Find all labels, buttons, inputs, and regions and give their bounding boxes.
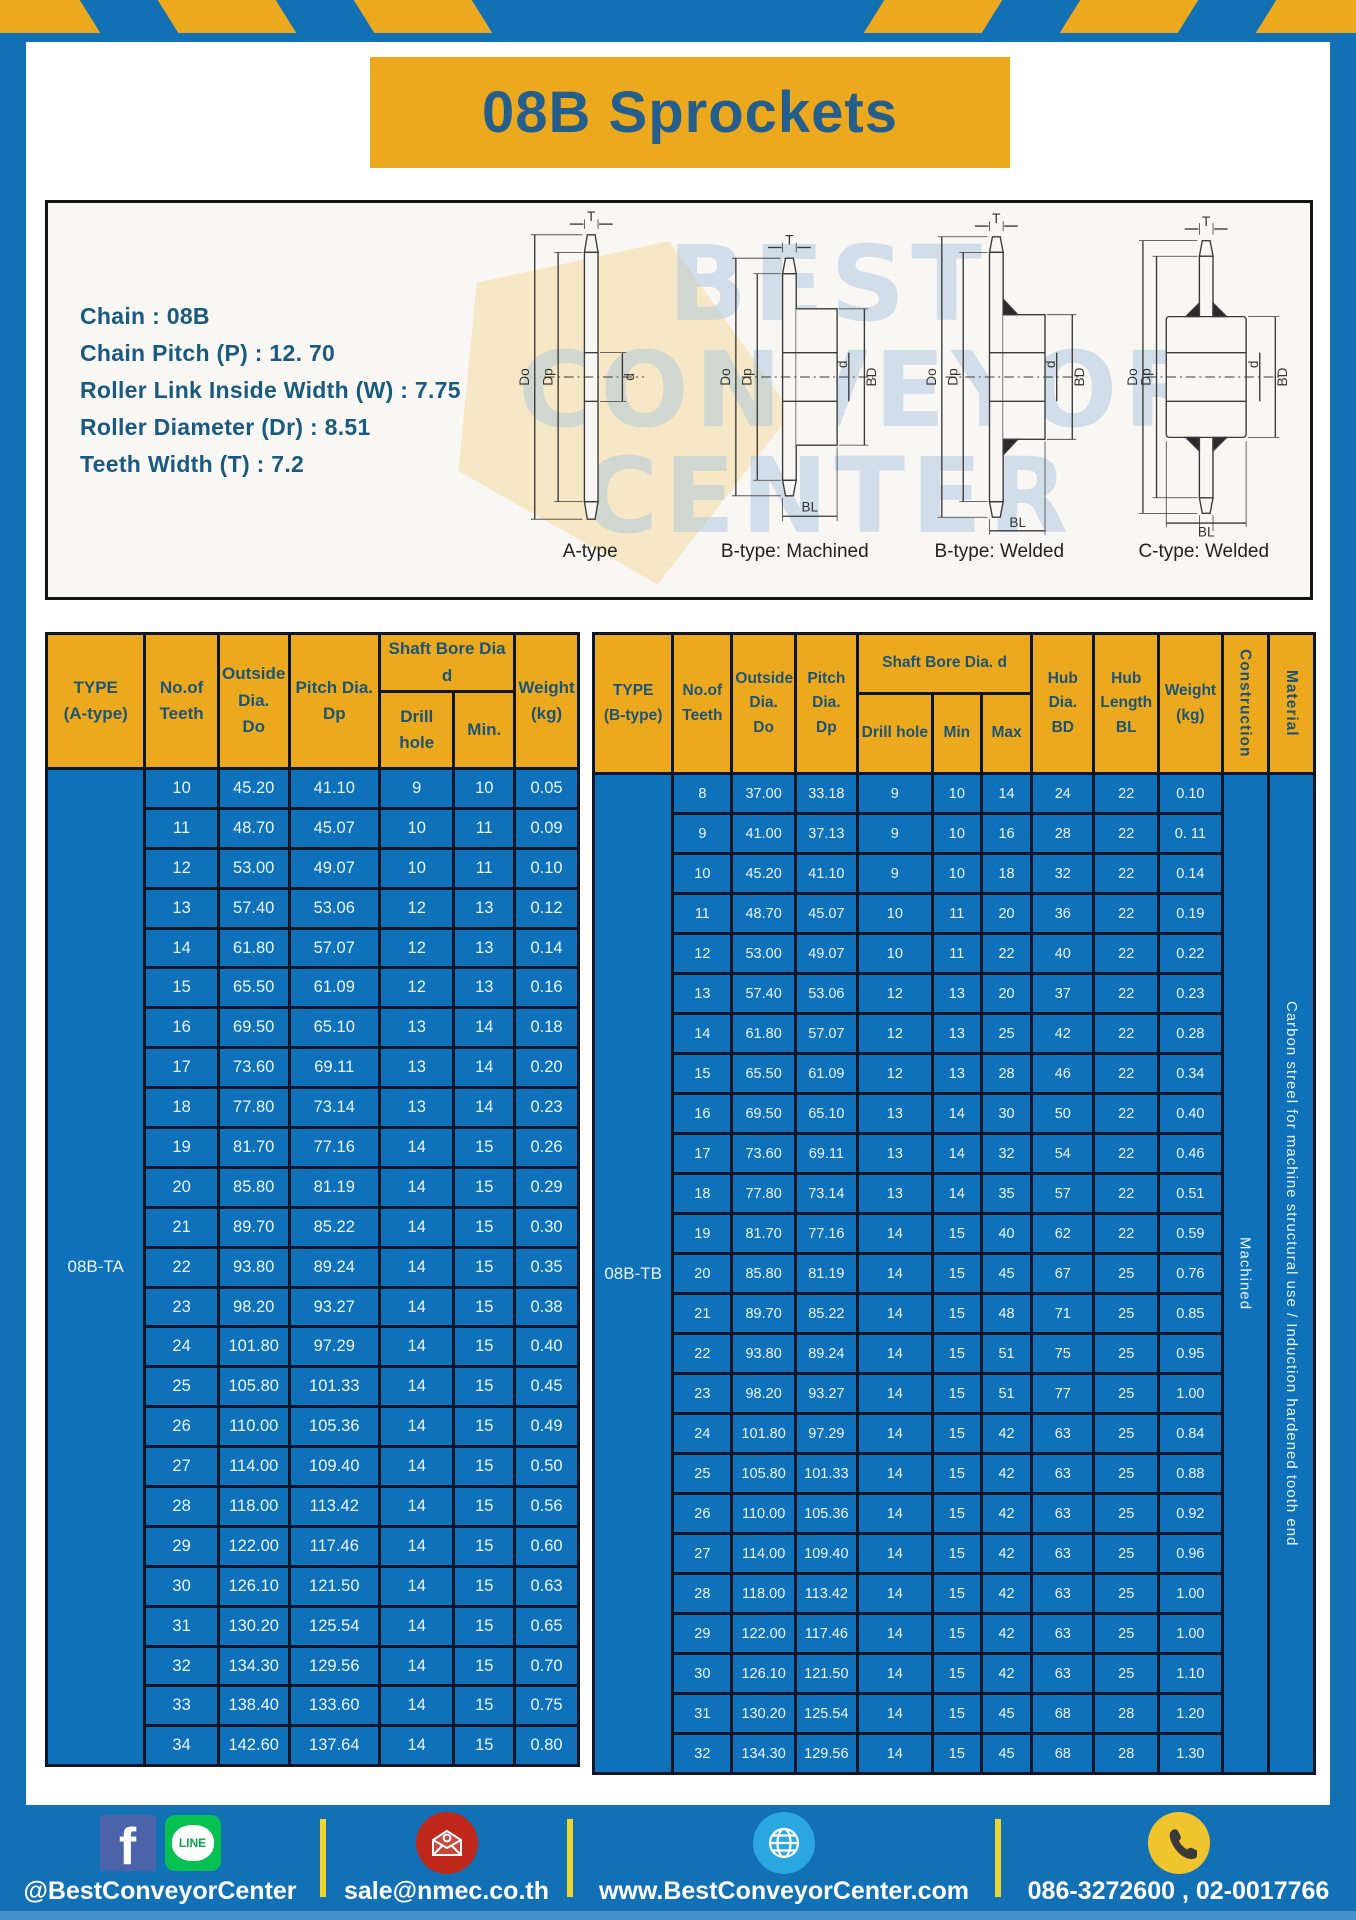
table-b-row: 2293.8089.2414155175250.95	[594, 1334, 1315, 1374]
col-header-min: Min.	[454, 692, 515, 769]
table-a-cell: 57.40	[218, 888, 289, 928]
table-b-body: 08B-TB837.0033.189101424220.10MachinedCa…	[594, 774, 1315, 1774]
table-b-cell: 0.51	[1159, 1174, 1222, 1214]
table-b-cell: 15	[932, 1494, 981, 1534]
table-a-cell: 19	[145, 1128, 218, 1168]
table-a-cell: 122.00	[218, 1526, 289, 1566]
table-b-cell: 129.56	[795, 1734, 857, 1774]
table-b-cell: 114.00	[732, 1534, 795, 1574]
table-a-cell: 0.75	[515, 1686, 579, 1726]
table-a-cell: 101.33	[289, 1367, 379, 1407]
table-b-cell: 13	[857, 1174, 932, 1214]
table-a-cell: 45.20	[218, 769, 289, 809]
table-b-cell: 0.59	[1159, 1214, 1222, 1254]
table-b-cell: 69.11	[795, 1134, 857, 1174]
dim-t: T	[1202, 214, 1211, 229]
table-a-cell: 31	[145, 1606, 218, 1646]
table-a-cell: 142.60	[218, 1726, 289, 1766]
figure-a-type: T Do Dp d A-type	[488, 209, 693, 595]
table-a-cell: 34	[145, 1726, 218, 1766]
table-b-row: 1565.5061.0912132846220.34	[594, 1054, 1315, 1094]
table-b-row: 32134.30129.5614154568281.30	[594, 1734, 1315, 1774]
table-b-cell: 22	[1094, 1214, 1159, 1254]
table-b-cell: 81.70	[732, 1214, 795, 1254]
footer-phone-segment[interactable]: 086-3272600 , 02-0017766	[1001, 1805, 1356, 1920]
table-b-cell: 21	[673, 1294, 732, 1334]
top-decorative-band	[0, 0, 1356, 42]
table-a-cell: 73.60	[218, 1048, 289, 1088]
phone-icon[interactable]	[1148, 1812, 1210, 1874]
table-b-cell: 36	[1032, 894, 1094, 934]
col-header-pitch-dia: Pitch Dia. Dp	[795, 634, 857, 774]
table-a-cell: 61.80	[218, 928, 289, 968]
table-b-cell: 42	[981, 1654, 1031, 1694]
table-b-cell: 105.80	[732, 1454, 795, 1494]
table-b-row: 31130.20125.5414154568281.20	[594, 1694, 1315, 1734]
table-a-cell: 0.12	[515, 888, 579, 928]
table-b-cell: 42	[1032, 1014, 1094, 1054]
table-a-cell: 97.29	[289, 1327, 379, 1367]
table-b-cell: 121.50	[795, 1654, 857, 1694]
table-b-row: 26110.00105.3614154263250.92	[594, 1494, 1315, 1534]
table-b-row: 1357.4053.0612132037220.23	[594, 974, 1315, 1014]
table-b-cell: 42	[981, 1454, 1031, 1494]
table-b-cell: 113.42	[795, 1574, 857, 1614]
table-b-cell: 0.28	[1159, 1014, 1222, 1054]
table-a-cell: 26	[145, 1407, 218, 1447]
table-b-cell: 24	[673, 1414, 732, 1454]
table-a-cell: 15	[454, 1606, 515, 1646]
table-a-cell: 14	[380, 1167, 454, 1207]
table-a-cell: 93.80	[218, 1247, 289, 1287]
table-b-cell: 68	[1032, 1734, 1094, 1774]
table-b-cell: 14	[932, 1094, 981, 1134]
table-b-cell: 0.19	[1159, 894, 1222, 934]
col-header-max: Max	[981, 694, 1031, 774]
table-a-cell: 0.45	[515, 1367, 579, 1407]
dim-d: d	[622, 373, 637, 381]
social-handle[interactable]: @BestConveyorCenter	[23, 1877, 296, 1906]
table-a-cell: 10	[145, 769, 218, 809]
col-header-material: Material	[1268, 634, 1314, 774]
table-b-cell: 30	[673, 1654, 732, 1694]
table-b-cell: 118.00	[732, 1574, 795, 1614]
table-a-cell: 110.00	[218, 1407, 289, 1447]
table-b-cell: 10	[857, 934, 932, 974]
table-a-cell: 118.00	[218, 1487, 289, 1527]
table-b-cell: 10	[932, 854, 981, 894]
table-b-cell: 14	[857, 1654, 932, 1694]
table-a-cell: 114.00	[218, 1447, 289, 1487]
dim-dp: Dp	[945, 368, 960, 385]
table-a-cell: 15	[454, 1407, 515, 1447]
table-a-cell: 9	[380, 769, 454, 809]
table-a-cell: 0.49	[515, 1407, 579, 1447]
table-b-cell: 45	[981, 1734, 1031, 1774]
col-header-weight: Weight (kg)	[1159, 634, 1222, 774]
col-header-hub-dia: Hub Dia. BD	[1032, 634, 1094, 774]
facebook-icon[interactable]: f	[100, 1815, 156, 1871]
table-b-cell: 11	[932, 934, 981, 974]
table-b-cell: 12	[857, 974, 932, 1014]
table-b-cell: 53.00	[732, 934, 795, 974]
table-a-cell: 113.42	[289, 1487, 379, 1527]
table-b-row: 2189.7085.2214154871250.85	[594, 1294, 1315, 1334]
table-b-cell: 26	[673, 1494, 732, 1534]
table-b-cell: 15	[932, 1574, 981, 1614]
table-b-row: 24101.8097.2914154263250.84	[594, 1414, 1315, 1454]
figure-label: B-type: Machined	[721, 541, 869, 563]
table-a-cell: 14	[380, 1526, 454, 1566]
table-b-cell: 1.00	[1159, 1374, 1222, 1414]
table-b-cell: 69.50	[732, 1094, 795, 1134]
table-b-cell: 25	[1094, 1294, 1159, 1334]
sprocket-table-a-type: TYPE (A-type) No.of Teeth Outside Dia. D…	[45, 632, 580, 1767]
table-a-cell: 0.29	[515, 1167, 579, 1207]
table-a-cell: 0.14	[515, 928, 579, 968]
table-a-body: 08B-TA1045.2041.109100.051148.7045.07101…	[47, 769, 579, 1766]
table-a-cell: 12	[145, 848, 218, 888]
b-type-machined-drawing: T Do Dp d BD BL	[693, 209, 898, 545]
footer-email-segment[interactable]: sale@nmec.co.th	[326, 1805, 567, 1920]
table-a-cell: 14	[380, 1606, 454, 1646]
table-b-row: 25105.80101.3314154263250.88	[594, 1454, 1315, 1494]
table-b-cell: 54	[1032, 1134, 1094, 1174]
table-a-cell: 0.65	[515, 1606, 579, 1646]
line-bubble: LINE	[172, 1825, 214, 1861]
construction-cell: Machined	[1222, 774, 1268, 1774]
title-banner: 08B Sprockets	[370, 57, 1010, 168]
table-a-cell: 65.10	[289, 1008, 379, 1048]
table-b-cell: 101.80	[732, 1414, 795, 1454]
table-b-cell: 31	[673, 1694, 732, 1734]
col-header-hub-length: Hub Length BL	[1094, 634, 1159, 774]
table-a-cell: 10	[454, 769, 515, 809]
table-b-cell: 85.22	[795, 1294, 857, 1334]
table-b-cell: 1.20	[1159, 1694, 1222, 1734]
table-a-cell: 11	[454, 848, 515, 888]
phone-numbers[interactable]: 086-3272600 , 02-0017766	[1028, 1877, 1330, 1906]
table-a-cell: 14	[380, 1247, 454, 1287]
table-a-cell: 93.27	[289, 1287, 379, 1327]
footer-social-segment[interactable]: f LINE @BestConveyorCenter	[0, 1805, 320, 1920]
table-b-type-cell: 08B-TB	[594, 774, 673, 1774]
table-a-cell: 133.60	[289, 1686, 379, 1726]
contact-footer: f LINE @BestConveyorCenter sale@nmec.co.…	[0, 1805, 1356, 1920]
table-a-cell: 117.46	[289, 1526, 379, 1566]
table-b-cell: 130.20	[732, 1694, 795, 1734]
table-b-cell: 9	[857, 774, 932, 814]
website-url[interactable]: www.BestConveyorCenter.com	[599, 1877, 969, 1906]
table-b-cell: 110.00	[732, 1494, 795, 1534]
table-b-cell: 61.09	[795, 1054, 857, 1094]
table-a-cell: 14	[380, 1128, 454, 1168]
table-a-cell: 109.40	[289, 1447, 379, 1487]
table-b-cell: 89.70	[732, 1294, 795, 1334]
table-b-cell: 15	[932, 1294, 981, 1334]
col-header-drill-hole: Drill hole	[380, 692, 454, 769]
table-b-cell: 1.10	[1159, 1654, 1222, 1694]
table-b-cell: 37	[1032, 974, 1094, 1014]
table-b-cell: 25	[1094, 1374, 1159, 1414]
col-header-type: TYPE (B-type)	[594, 634, 673, 774]
table-b-cell: 22	[1094, 774, 1159, 814]
material-cell: Carbon streel for machine structural use…	[1268, 774, 1314, 1774]
table-a-row: 08B-TA1045.2041.109100.05	[47, 769, 579, 809]
table-b-cell: 97.29	[795, 1414, 857, 1454]
table-b-cell: 42	[981, 1614, 1031, 1654]
dim-bl: BL	[1009, 515, 1026, 530]
table-a-cell: 14	[380, 1367, 454, 1407]
table-a-cell: 15	[454, 1686, 515, 1726]
table-b-cell: 15	[932, 1214, 981, 1254]
table-a-cell: 28	[145, 1487, 218, 1527]
spec-line: Roller Link Inside Width (W) : 7.75	[80, 377, 500, 404]
table-a-cell: 69.11	[289, 1048, 379, 1088]
figure-label: A-type	[563, 541, 618, 563]
table-b-cell: 75	[1032, 1334, 1094, 1374]
table-b-cell: 12	[673, 934, 732, 974]
table-b-cell: 49.07	[795, 934, 857, 974]
table-b-cell: 101.33	[795, 1454, 857, 1494]
table-b-cell: 57.07	[795, 1014, 857, 1054]
col-header-min: Min	[932, 694, 981, 774]
table-b-cell: 25	[1094, 1534, 1159, 1574]
table-a-cell: 15	[454, 1526, 515, 1566]
table-a-cell: 138.40	[218, 1686, 289, 1726]
table-a-cell: 130.20	[218, 1606, 289, 1646]
table-b-cell: 25	[1094, 1614, 1159, 1654]
table-b-row: 08B-TB837.0033.189101424220.10MachinedCa…	[594, 774, 1315, 814]
figure-c-type-welded: T Do Dp d BD BL C-type: Welded	[1102, 209, 1307, 595]
table-a-cell: 98.20	[218, 1287, 289, 1327]
table-a-cell: 0.05	[515, 769, 579, 809]
table-a-cell: 14	[380, 1207, 454, 1247]
table-b-cell: 46	[1032, 1054, 1094, 1094]
table-b-cell: 20	[673, 1254, 732, 1294]
dim-do: Do	[718, 368, 733, 385]
email-icon[interactable]	[416, 1812, 478, 1874]
table-b-cell: 0.34	[1159, 1054, 1222, 1094]
table-a-cell: 0.18	[515, 1008, 579, 1048]
table-a-cell: 14	[380, 1566, 454, 1606]
technical-drawing-panel: BEST CONVEYOR CENTER Chain : 08BChain Pi…	[45, 200, 1313, 600]
table-b-cell: 22	[673, 1334, 732, 1374]
table-a-cell: 29	[145, 1526, 218, 1566]
table-a-cell: 23	[145, 1287, 218, 1327]
table-a-container: TYPE (A-type) No.of Teeth Outside Dia. D…	[45, 632, 580, 1767]
table-b-cell: 45.07	[795, 894, 857, 934]
table-b-cell: 12	[857, 1054, 932, 1094]
table-b-cell: 25	[1094, 1494, 1159, 1534]
table-b-cell: 10	[932, 814, 981, 854]
table-b-cell: 16	[673, 1094, 732, 1134]
spec-line: Chain : 08B	[80, 303, 500, 330]
table-a-cell: 0.40	[515, 1327, 579, 1367]
email-address[interactable]: sale@nmec.co.th	[344, 1877, 549, 1906]
table-b-cell: 28	[1094, 1734, 1159, 1774]
table-b-cell: 22	[1094, 814, 1159, 854]
table-b-cell: 50	[1032, 1094, 1094, 1134]
stripe-decoration	[1256, 0, 1356, 33]
table-a-cell: 15	[145, 968, 218, 1008]
table-a-cell: 134.30	[218, 1646, 289, 1686]
table-a-cell: 10	[380, 808, 454, 848]
table-a-cell: 0.70	[515, 1646, 579, 1686]
table-b-cell: 15	[932, 1654, 981, 1694]
col-header-shaft-bore: Shaft Bore Dia. d	[857, 634, 1031, 694]
table-a-cell: 14	[380, 1487, 454, 1527]
table-b-cell: 40	[981, 1214, 1031, 1254]
dim-t: T	[587, 209, 596, 224]
table-b-cell: 63	[1032, 1454, 1094, 1494]
table-b-cell: 14	[981, 774, 1031, 814]
table-b-row: 27114.00109.4014154263250.96	[594, 1534, 1315, 1574]
dim-dp: Dp	[540, 368, 555, 385]
table-a-cell: 13	[380, 1048, 454, 1088]
table-a-cell: 13	[380, 1088, 454, 1128]
table-a-cell: 10	[380, 848, 454, 888]
table-a-cell: 53.00	[218, 848, 289, 888]
dim-bl: BL	[801, 499, 818, 514]
table-b-cell: 8	[673, 774, 732, 814]
col-header-weight: Weight (kg)	[515, 634, 579, 769]
stripe-decoration	[0, 0, 100, 33]
table-a-cell: 12	[380, 888, 454, 928]
table-b-cell: 134.30	[732, 1734, 795, 1774]
table-b-cell: 14	[857, 1334, 932, 1374]
col-header-drill-hole: Drill hole	[857, 694, 932, 774]
table-b-row: 29122.00117.4614154263251.00	[594, 1614, 1315, 1654]
col-header-teeth: No.of Teeth	[145, 634, 218, 769]
table-a-cell: 65.50	[218, 968, 289, 1008]
table-b-cell: 9	[857, 814, 932, 854]
table-a-cell: 81.19	[289, 1167, 379, 1207]
table-b-cell: 14	[857, 1574, 932, 1614]
spec-line: Chain Pitch (P) : 12. 70	[80, 340, 500, 367]
table-a-cell: 14	[380, 1447, 454, 1487]
table-a-cell: 15	[454, 1367, 515, 1407]
table-a-cell: 13	[454, 888, 515, 928]
table-a-cell: 14	[380, 1407, 454, 1447]
table-b-cell: 73.14	[795, 1174, 857, 1214]
table-b-cell: 15	[932, 1734, 981, 1774]
figure-b-type-welded: T Do Dp d BD BL B-type: Welded	[897, 209, 1102, 595]
table-a-cell: 13	[145, 888, 218, 928]
col-header-type: TYPE (A-type)	[47, 634, 145, 769]
table-a-cell: 121.50	[289, 1566, 379, 1606]
table-a-cell: 14	[380, 1327, 454, 1367]
table-a-cell: 105.36	[289, 1407, 379, 1447]
table-a-cell: 73.14	[289, 1088, 379, 1128]
datasheet-page: { "page": { "title": "08B Sprockets" }, …	[0, 0, 1356, 1920]
table-b-cell: 29	[673, 1614, 732, 1654]
table-b-cell: 0.40	[1159, 1094, 1222, 1134]
table-a-cell: 14	[380, 1646, 454, 1686]
table-a-cell: 13	[454, 928, 515, 968]
table-b-cell: 65.10	[795, 1094, 857, 1134]
table-b-cell: 0.85	[1159, 1294, 1222, 1334]
dim-d: d	[1245, 361, 1260, 369]
table-b-cell: 25	[1094, 1574, 1159, 1614]
table-a-cell: 89.70	[218, 1207, 289, 1247]
table-b-cell: 14	[932, 1174, 981, 1214]
table-a-cell: 13	[380, 1008, 454, 1048]
table-b-cell: 20	[981, 894, 1031, 934]
table-b-cell: 25	[673, 1454, 732, 1494]
table-b-cell: 48	[981, 1294, 1031, 1334]
table-b-cell: 63	[1032, 1534, 1094, 1574]
table-b-cell: 22	[1094, 934, 1159, 974]
table-b-cell: 15	[932, 1454, 981, 1494]
table-b-cell: 62	[1032, 1214, 1094, 1254]
sprocket-figures: T Do Dp d A-type	[488, 209, 1306, 595]
table-a-cell: 41.10	[289, 769, 379, 809]
table-b-cell: 73.60	[732, 1134, 795, 1174]
table-b-cell: 77	[1032, 1374, 1094, 1414]
figure-b-type-machined: T Do Dp d BD BL B-type: Machined	[693, 209, 898, 595]
table-b-cell: 13	[673, 974, 732, 1014]
table-b-cell: 35	[981, 1174, 1031, 1214]
table-b-cell: 22	[1094, 1014, 1159, 1054]
table-a-cell: 14	[380, 1726, 454, 1766]
table-a-cell: 11	[145, 808, 218, 848]
table-b-cell: 1.00	[1159, 1614, 1222, 1654]
table-b-cell: 19	[673, 1214, 732, 1254]
table-a-cell: 15	[454, 1646, 515, 1686]
spec-line: Roller Diameter (Dr) : 8.51	[80, 414, 500, 441]
table-b-cell: 0.95	[1159, 1334, 1222, 1374]
table-a-cell: 12	[380, 968, 454, 1008]
table-b-cell: 109.40	[795, 1534, 857, 1574]
table-a-cell: 14	[380, 1287, 454, 1327]
table-b-cell: 9	[857, 854, 932, 894]
page-content: 08B Sprockets BEST CONVEYOR CENTER Chain…	[26, 42, 1330, 1805]
table-a-cell: 0.60	[515, 1526, 579, 1566]
table-a-cell: 15	[454, 1128, 515, 1168]
table-b-cell: 18	[981, 854, 1031, 894]
table-a-cell: 12	[380, 928, 454, 968]
table-a-cell: 27	[145, 1447, 218, 1487]
table-a-cell: 24	[145, 1327, 218, 1367]
table-a-cell: 48.70	[218, 808, 289, 848]
dim-t: T	[785, 233, 794, 248]
table-b-cell: 22	[1094, 1094, 1159, 1134]
globe-icon[interactable]	[753, 1812, 815, 1874]
line-app-icon[interactable]: LINE	[165, 1815, 221, 1871]
table-a-cell: 15	[454, 1487, 515, 1527]
table-a-cell: 85.22	[289, 1207, 379, 1247]
table-a-cell: 89.24	[289, 1247, 379, 1287]
table-b-row: 2398.2093.2714155177251.00	[594, 1374, 1315, 1414]
table-b-cell: 57.40	[732, 974, 795, 1014]
table-b-row: 28118.00113.4214154263251.00	[594, 1574, 1315, 1614]
table-a-cell: 11	[454, 808, 515, 848]
dim-d: d	[1043, 361, 1058, 369]
table-b-row: 1773.6069.1113143254220.46	[594, 1134, 1315, 1174]
footer-website-segment[interactable]: www.BestConveyorCenter.com	[573, 1805, 995, 1920]
table-a-cell: 69.50	[218, 1008, 289, 1048]
table-b-cell: 14	[857, 1214, 932, 1254]
table-a-cell: 125.54	[289, 1606, 379, 1646]
table-b-cell: 13	[932, 974, 981, 1014]
table-b-cell: 22	[1094, 1134, 1159, 1174]
stripe-decoration	[1060, 0, 1199, 33]
table-b-cell: 40	[1032, 934, 1094, 974]
table-a-cell: 15	[454, 1566, 515, 1606]
table-b-cell: 25	[1094, 1254, 1159, 1294]
table-b-cell: 22	[1094, 854, 1159, 894]
